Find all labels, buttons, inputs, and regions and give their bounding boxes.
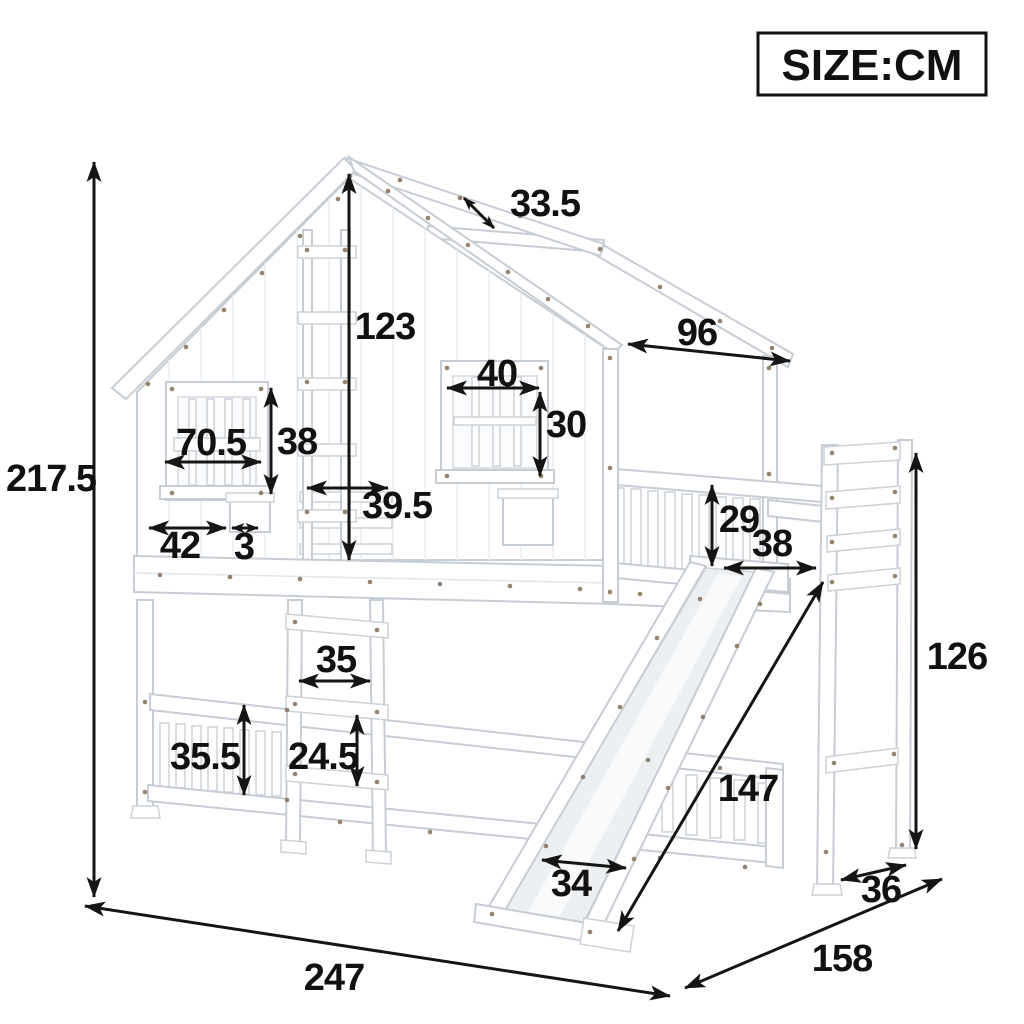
- dim-label-slide-width: 34: [551, 863, 592, 905]
- right-window-sill: [436, 470, 554, 483]
- dim-label-front-ladder-width: 35: [316, 639, 357, 681]
- front-ladder-left-rail: [286, 600, 302, 846]
- dim-label-bed-depth: 158: [812, 938, 872, 980]
- dim-label-ladder-rung-spacing: 24.5: [288, 736, 359, 778]
- lower-front-post-foot: [131, 806, 160, 818]
- dim-label-wall-ledge-width: 42: [160, 525, 200, 567]
- front-right-roof-post: [603, 349, 618, 602]
- front-ladder-right-foot: [366, 850, 391, 864]
- dim-label-roof-beam-gap: 33.5: [510, 183, 581, 225]
- front-ladder-left-foot: [281, 840, 306, 854]
- dim-label-peak-to-upper-bunk: 123: [355, 306, 415, 348]
- dim-label-slide-opening-width: 38: [752, 523, 792, 565]
- size-unit-label: SIZE:CM: [782, 41, 963, 90]
- dim-label-rear-ladder-height: 126: [927, 636, 987, 678]
- rear-ladder: [812, 440, 916, 895]
- dim-label-slide-length: 147: [718, 768, 778, 810]
- dim-label-roof-side-length: 96: [677, 312, 717, 354]
- front-ladder-right-rail: [370, 600, 386, 856]
- dim-label-door-opening-width: 39.5: [362, 485, 433, 527]
- dim-total-height: 217.5: [6, 162, 97, 897]
- bed-diagram-canvas: 217.5 33.5 123 96 40 30 70.5 38: [0, 0, 1024, 1024]
- size-unit-box: SIZE:CM: [758, 33, 986, 95]
- slide-foot: [580, 918, 634, 952]
- dim-label-right-window-height: 30: [546, 404, 586, 446]
- dim-label-left-window-height: 38: [277, 421, 317, 463]
- dim-rear-ladder-height: 126: [916, 453, 987, 849]
- rear-ladder-right-foot: [888, 848, 916, 858]
- dim-label-total-height: 217.5: [6, 458, 97, 500]
- slide: [474, 556, 788, 952]
- dim-front-ladder-width: 35: [299, 639, 370, 681]
- dim-label-bed-length: 247: [304, 957, 364, 999]
- bunk-bed-dimension-diagram: 217.5 33.5 123 96 40 30 70.5 38: [0, 0, 1024, 1024]
- dim-label-left-window-width: 70.5: [176, 422, 247, 464]
- rear-ladder-left-foot: [812, 884, 842, 895]
- right-planter-box: [503, 495, 553, 545]
- dim-label-lower-guardrail-height: 35.5: [170, 736, 241, 778]
- dim-rear-ladder-depth: 36: [841, 865, 906, 911]
- dim-label-ledge-thickness: 3: [234, 526, 254, 568]
- rear-ladder-lower-bar: [826, 748, 898, 773]
- dim-label-right-window-width: 40: [477, 353, 517, 395]
